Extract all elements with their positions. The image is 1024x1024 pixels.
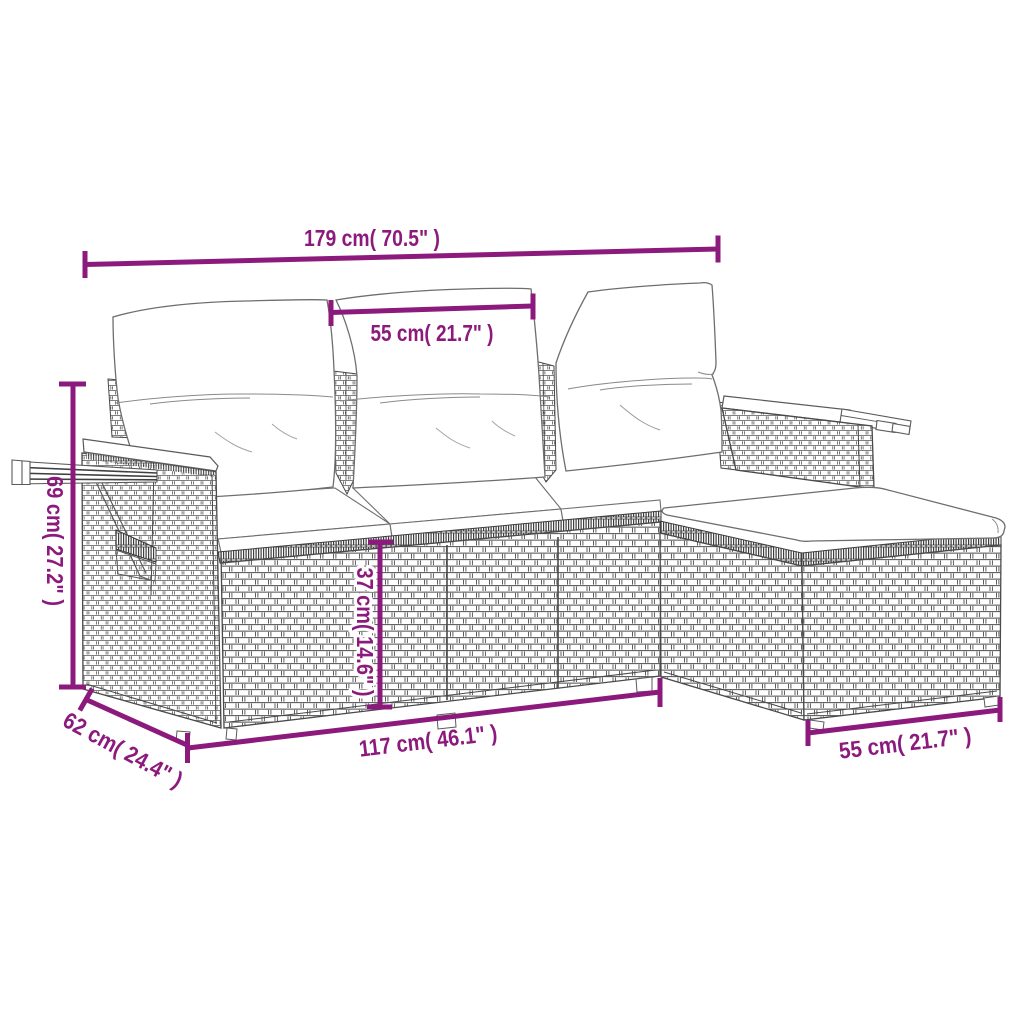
svg-text:37 cm( 14.6" ): 37 cm( 14.6" )	[352, 568, 378, 697]
svg-text:69 cm( 27.2" ): 69 cm( 27.2" )	[42, 476, 68, 606]
svg-text:179 cm( 70.5" ): 179 cm( 70.5" )	[304, 225, 440, 251]
svg-text:55 cm( 21.7" ): 55 cm( 21.7" )	[371, 320, 494, 346]
